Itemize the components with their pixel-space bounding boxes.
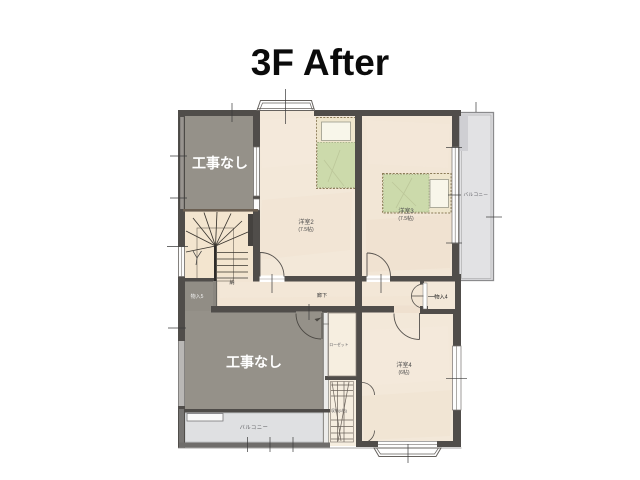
svg-text:廊下: 廊下: [317, 291, 327, 299]
svg-text:洋室2: 洋室2: [298, 218, 314, 226]
svg-text:工事なし: 工事なし: [192, 155, 248, 171]
svg-text:工事なし: 工事なし: [226, 354, 282, 370]
svg-text:3F After: 3F After: [251, 42, 389, 83]
svg-text:バルコニー: バルコニー: [240, 424, 269, 431]
svg-text:洋室3: 洋室3: [398, 207, 414, 215]
svg-text:物入5: 物入5: [191, 293, 204, 300]
svg-text:物入4: 物入4: [434, 293, 447, 301]
svg-text:(6帖): (6帖): [398, 369, 409, 376]
svg-text:洋室4: 洋室4: [396, 361, 412, 369]
svg-text:(7.5帖): (7.5帖): [298, 226, 314, 233]
svg-text:収納(1帖): 収納(1帖): [331, 408, 348, 413]
svg-text:クローゼット: クローゼット: [326, 342, 349, 347]
svg-text:バルコニー: バルコニー: [464, 192, 489, 197]
svg-text:(7.5帖): (7.5帖): [398, 215, 414, 222]
